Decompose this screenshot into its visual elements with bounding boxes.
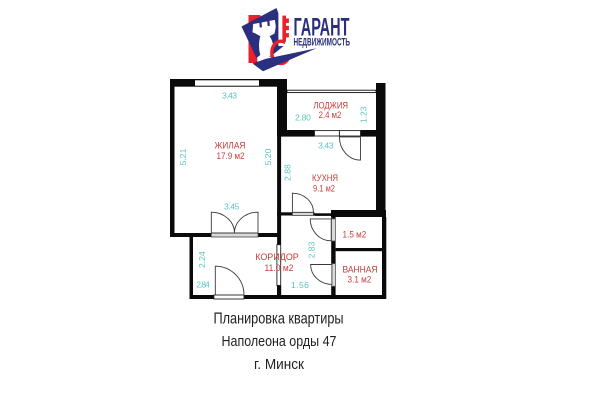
- svg-text:Наполеона орды 47: Наполеона орды 47: [222, 333, 337, 350]
- svg-text:11.0 м2: 11.0 м2: [265, 263, 294, 273]
- svg-text:ВАННАЯ: ВАННАЯ: [343, 264, 378, 274]
- svg-text:2.83: 2.83: [307, 241, 317, 258]
- svg-text:3.43: 3.43: [318, 141, 334, 151]
- svg-text:НЕДВИЖИМОСТЬ: НЕДВИЖИМОСТЬ: [294, 37, 351, 49]
- svg-text:г. Минск: г. Минск: [254, 356, 304, 373]
- svg-text:Планировка квартиры: Планировка квартиры: [214, 311, 344, 328]
- svg-text:КОРИДОР: КОРИДОР: [255, 252, 299, 262]
- svg-text:5.20: 5.20: [263, 148, 273, 165]
- svg-text:1.23: 1.23: [359, 106, 369, 123]
- svg-text:3.43: 3.43: [222, 91, 237, 101]
- svg-text:2.84: 2.84: [196, 280, 210, 290]
- svg-text:2.88: 2.88: [283, 164, 293, 181]
- svg-text:17.9 м2: 17.9 м2: [217, 151, 245, 161]
- svg-text:2.24: 2.24: [197, 251, 207, 268]
- svg-text:1.5 м2: 1.5 м2: [343, 229, 367, 239]
- svg-text:КУХНЯ: КУХНЯ: [312, 173, 338, 183]
- svg-text:1.56: 1.56: [291, 280, 309, 290]
- svg-text:3.45: 3.45: [224, 201, 240, 211]
- svg-text:ЖИЛАЯ: ЖИЛАЯ: [215, 141, 246, 151]
- svg-text:9.1 м2: 9.1 м2: [313, 184, 335, 194]
- svg-text:ЛОДЖИЯ: ЛОДЖИЯ: [313, 100, 348, 110]
- svg-text:5.21: 5.21: [178, 148, 188, 165]
- svg-text:3.1 м2: 3.1 м2: [348, 274, 372, 284]
- svg-text:2.4 м2: 2.4 м2: [319, 110, 342, 120]
- svg-text:2.80: 2.80: [295, 113, 311, 123]
